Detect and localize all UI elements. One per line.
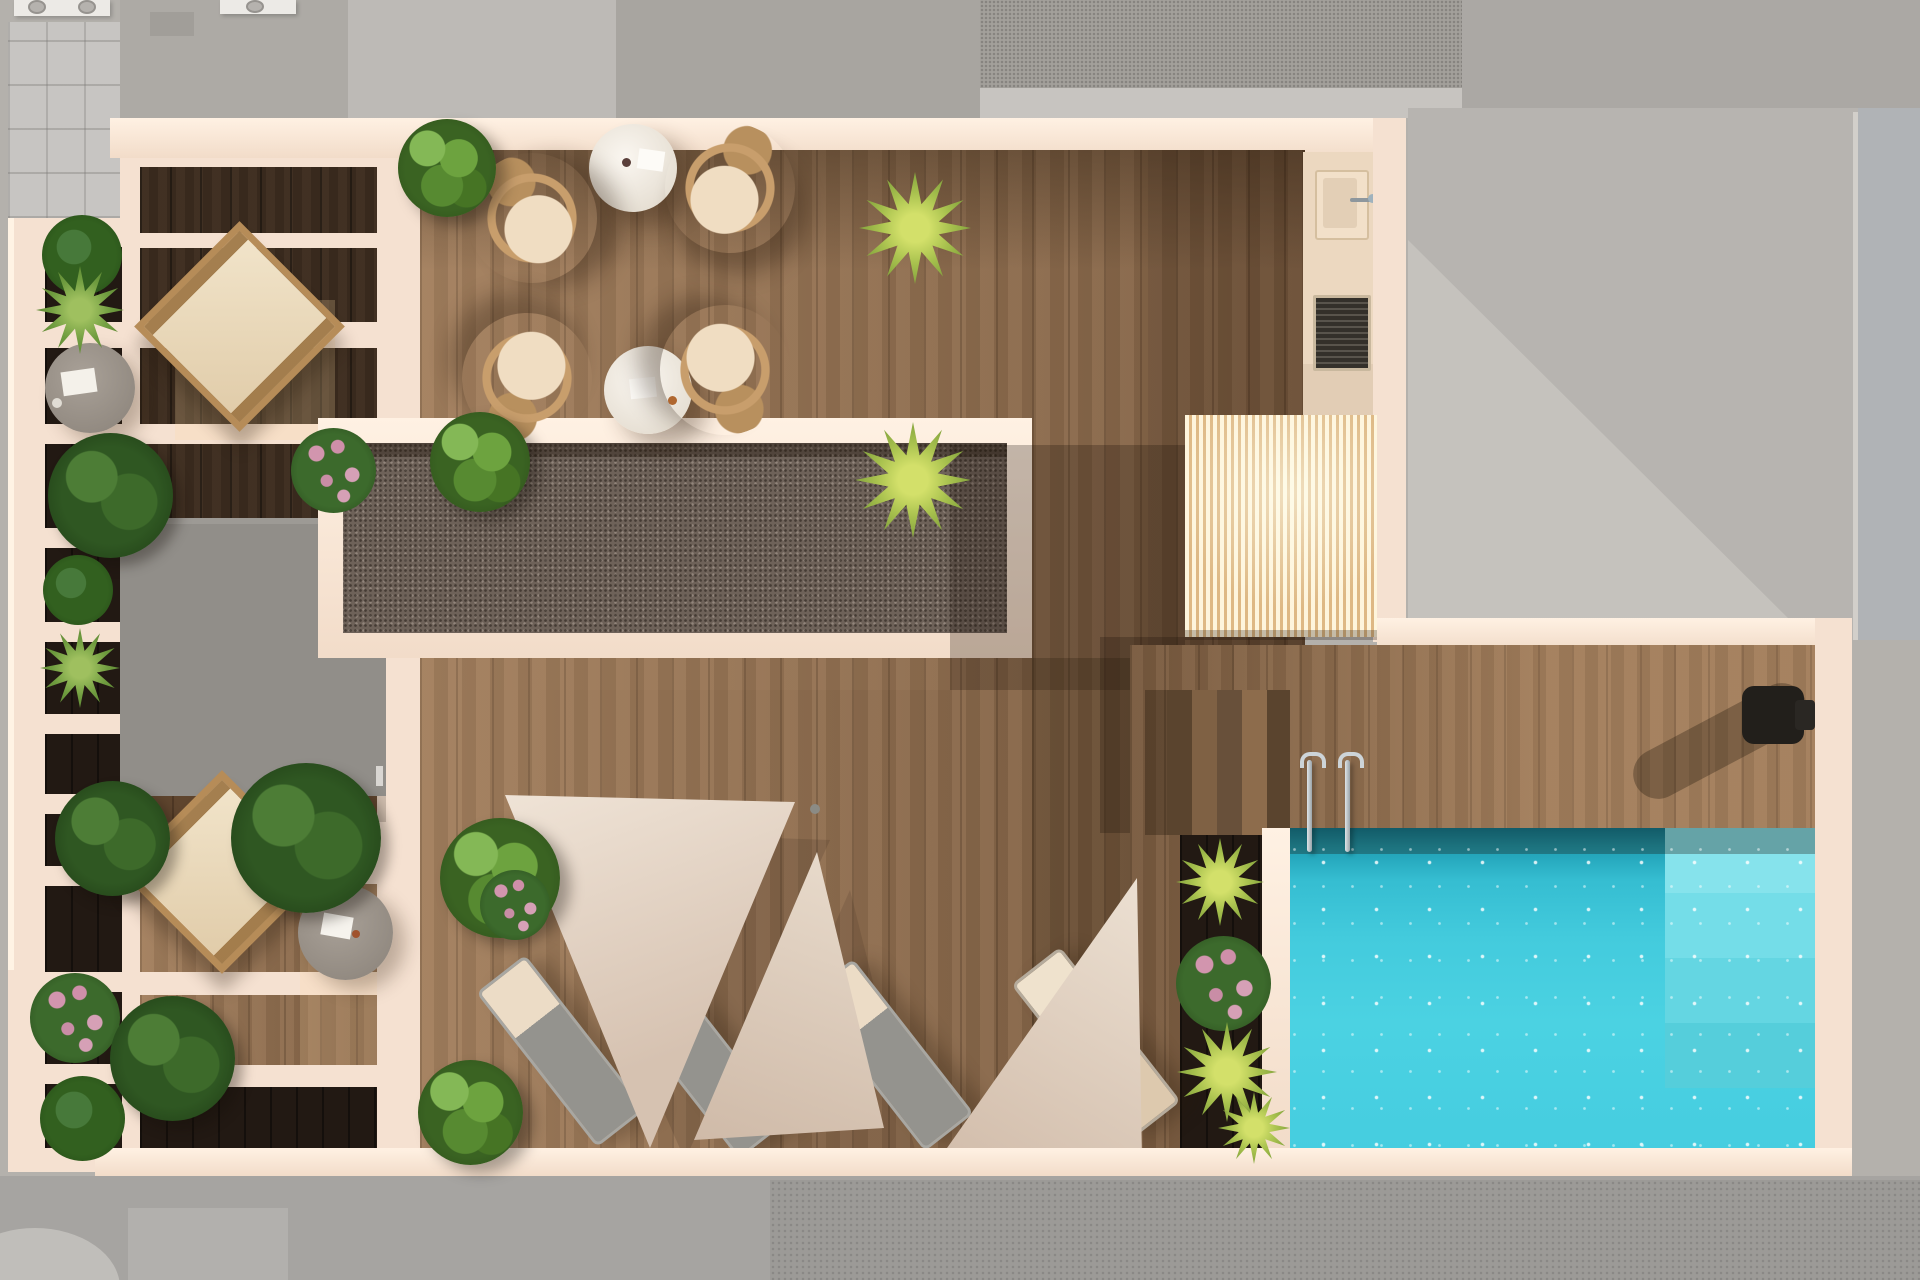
rooftop-terrace-render: Rooftop terrace 3D plan render — pool, s…: [0, 0, 1920, 1280]
bush-plant: [430, 412, 530, 512]
east-wall: [1373, 118, 1406, 642]
planter-box-8: [45, 886, 122, 972]
street-asphalt: [770, 1180, 1920, 1280]
street-slab: [128, 1208, 288, 1280]
leafy-plant: [48, 433, 173, 558]
roof-patch-b: [348, 0, 616, 118]
leafy-plant: [110, 996, 235, 1121]
poolwing-east-wall: [1815, 618, 1852, 1152]
right-building-column: [1858, 108, 1920, 640]
left-edge-glow: [8, 190, 14, 970]
flower-plant: [291, 428, 376, 513]
ac-fan-2: [78, 0, 96, 14]
bush-plant: [418, 1060, 523, 1165]
fern-plant: [43, 555, 113, 625]
pavement-tiles: [8, 22, 120, 218]
pool-sparkle: [1290, 828, 1815, 1152]
fern-plant: [40, 1076, 125, 1161]
canopy-bottom-edge: [1185, 630, 1377, 640]
flower-plant: [480, 870, 550, 940]
shower-arm: [1795, 700, 1815, 730]
roof-patch-e: [1462, 0, 1920, 108]
pool-ladder-hook-1: [1300, 752, 1326, 768]
ac-fan-1: [28, 0, 46, 14]
roof-patch-c: [616, 0, 980, 118]
berry-bowl: [352, 930, 360, 938]
deck-stairs-shadow: [1145, 690, 1167, 835]
roof-gravel-strip: [980, 0, 1462, 88]
leafy-plant: [231, 763, 381, 913]
sink-basin: [1323, 178, 1357, 228]
cup-1: [622, 158, 631, 167]
deck-stairs: [1167, 690, 1290, 835]
elevator-door-mark: [376, 766, 383, 786]
pool-ladder-rail-2: [1345, 760, 1350, 852]
bush-plant: [398, 119, 496, 217]
magazine: [60, 368, 97, 396]
roof-band: [980, 88, 1462, 118]
terrace-bottom-wall: [95, 1148, 1852, 1176]
kitchen-counter-low: [1303, 364, 1373, 416]
barbecue-grill: [1313, 295, 1371, 371]
roof-box: [150, 12, 194, 36]
sail-pole: [810, 804, 820, 814]
ac-fan-3: [246, 0, 264, 13]
flower-plant: [30, 973, 120, 1063]
pool-ladder-hook-2: [1338, 752, 1364, 768]
leafy-plant: [55, 781, 170, 896]
coffee-table-1: [589, 124, 677, 212]
tray-2: [629, 377, 657, 400]
coffee-cup: [52, 398, 62, 408]
slat-canopy: [1185, 415, 1377, 637]
tray-1: [637, 148, 666, 171]
pool-ladder-rail-1: [1307, 760, 1312, 852]
flower-plant: [1176, 936, 1271, 1031]
pergola-row-1: [140, 167, 377, 233]
